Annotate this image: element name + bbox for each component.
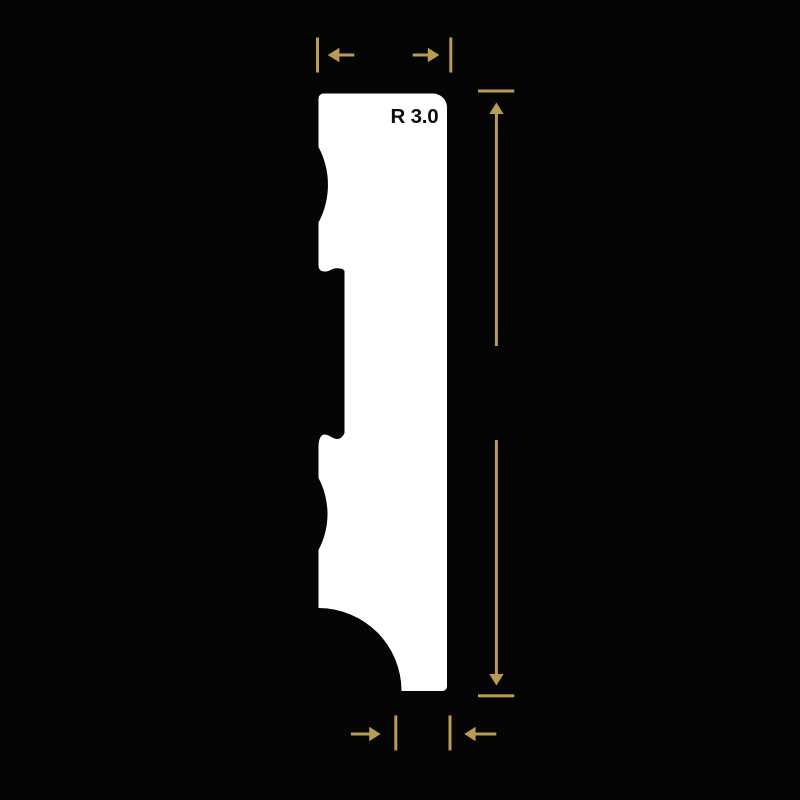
svg-text:R 3.0: R 3.0 <box>391 105 439 128</box>
